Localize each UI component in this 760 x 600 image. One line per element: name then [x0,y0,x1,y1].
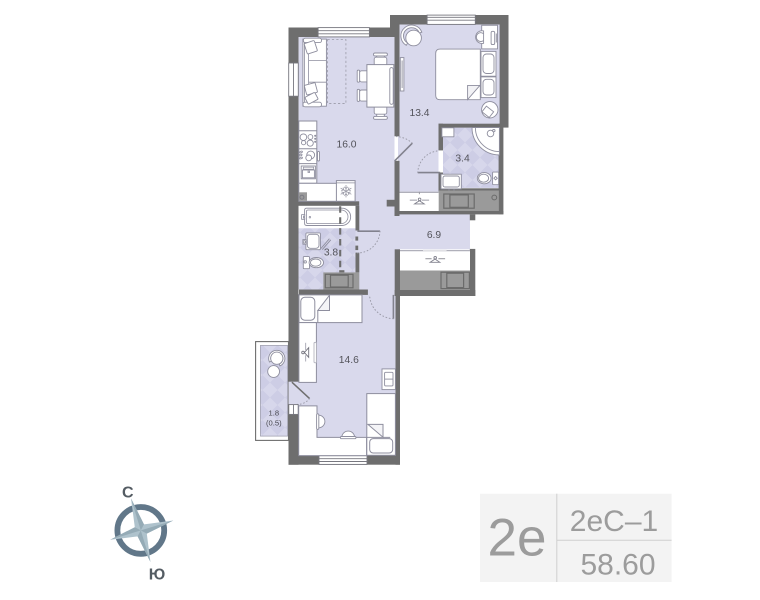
svg-text:С: С [122,484,134,501]
svg-text:(0.5): (0.5) [266,419,282,428]
svg-text:3.4: 3.4 [455,154,470,165]
svg-text:16.0: 16.0 [336,140,356,151]
svg-text:58.60: 58.60 [580,549,655,582]
svg-text:14.6: 14.6 [339,355,359,366]
svg-text:1.8: 1.8 [269,409,280,418]
svg-text:2еС–1: 2еС–1 [570,505,658,538]
svg-text:2е: 2е [488,509,547,568]
svg-text:6.9: 6.9 [427,230,442,241]
svg-text:3.8: 3.8 [324,248,339,259]
svg-text:13.4: 13.4 [409,108,429,119]
svg-text:Ю: Ю [149,567,166,584]
